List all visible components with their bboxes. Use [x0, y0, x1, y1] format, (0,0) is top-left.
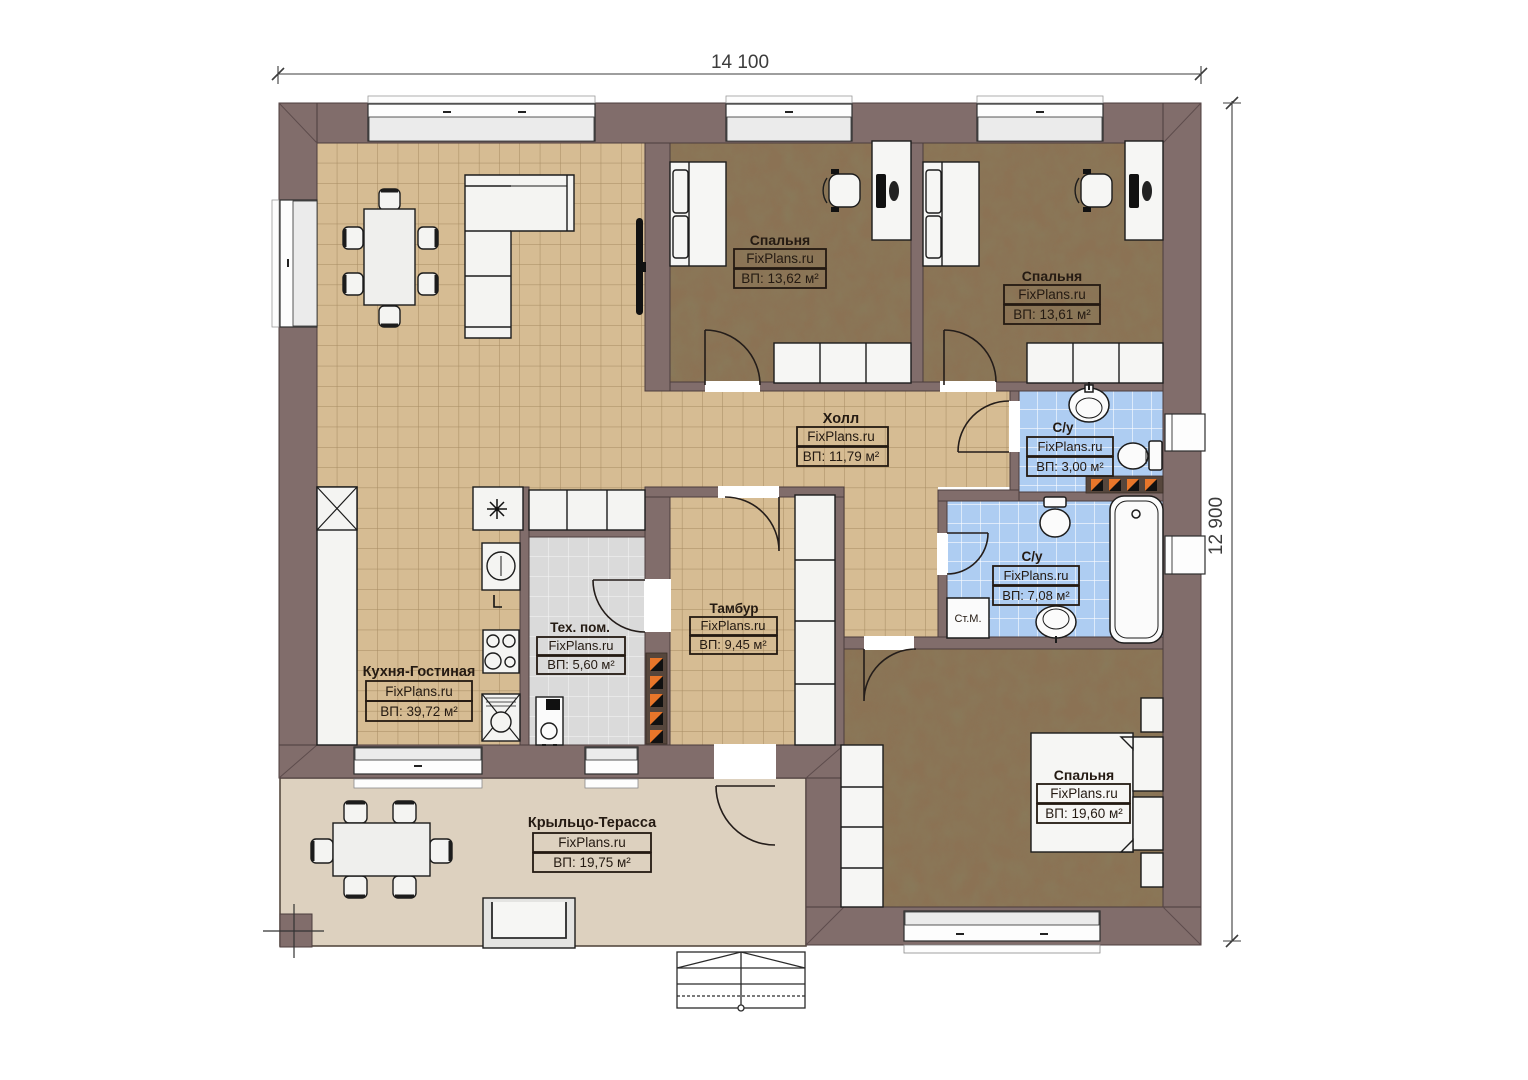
svg-text:FixPlans.ru: FixPlans.ru [1050, 786, 1118, 801]
svg-text:ВП: 19,60 м²: ВП: 19,60 м² [1045, 806, 1123, 821]
svg-text:Крыльцо-Терасса: Крыльцо-Терасса [528, 815, 657, 831]
svg-text:ВП: 5,60 м²: ВП: 5,60 м² [547, 657, 615, 672]
svg-text:ВП: 19,75 м²: ВП: 19,75 м² [553, 855, 631, 870]
svg-text:ВП: 13,62 м²: ВП: 13,62 м² [741, 271, 819, 286]
svg-text:Ст.М.: Ст.М. [954, 613, 981, 625]
svg-text:FixPlans.ru: FixPlans.ru [548, 638, 613, 653]
svg-text:С/у: С/у [1021, 549, 1043, 564]
svg-text:14 100: 14 100 [711, 52, 769, 73]
svg-text:Спальня: Спальня [1054, 767, 1114, 783]
svg-text:FixPlans.ru: FixPlans.ru [558, 835, 626, 850]
svg-text:Спальня: Спальня [1022, 268, 1082, 284]
svg-text:Холл: Холл [823, 411, 859, 427]
svg-text:Кухня-Гостиная: Кухня-Гостиная [363, 664, 476, 680]
svg-text:FixPlans.ru: FixPlans.ru [1018, 287, 1086, 302]
svg-text:FixPlans.ru: FixPlans.ru [1003, 568, 1068, 583]
svg-text:Спальня: Спальня [750, 232, 810, 248]
svg-text:FixPlans.ru: FixPlans.ru [700, 618, 765, 633]
svg-text:Тех. пом.: Тех. пом. [550, 620, 610, 635]
svg-text:ВП: 3,00 м²: ВП: 3,00 м² [1036, 459, 1104, 474]
svg-text:ВП: 39,72 м²: ВП: 39,72 м² [380, 704, 458, 719]
svg-text:12 900: 12 900 [1206, 497, 1227, 555]
svg-text:ВП: 9,45 м²: ВП: 9,45 м² [699, 637, 767, 652]
svg-text:Тамбур: Тамбур [710, 601, 759, 616]
svg-text:ВП: 11,79 м²: ВП: 11,79 м² [803, 449, 880, 464]
svg-text:FixPlans.ru: FixPlans.ru [807, 429, 875, 444]
svg-text:FixPlans.ru: FixPlans.ru [1037, 439, 1102, 454]
svg-text:ВП: 13,61 м²: ВП: 13,61 м² [1013, 307, 1091, 322]
svg-text:ВП: 7,08 м²: ВП: 7,08 м² [1002, 588, 1070, 603]
svg-text:С/у: С/у [1052, 420, 1074, 435]
svg-text:FixPlans.ru: FixPlans.ru [746, 251, 814, 266]
svg-text:FixPlans.ru: FixPlans.ru [385, 684, 453, 699]
